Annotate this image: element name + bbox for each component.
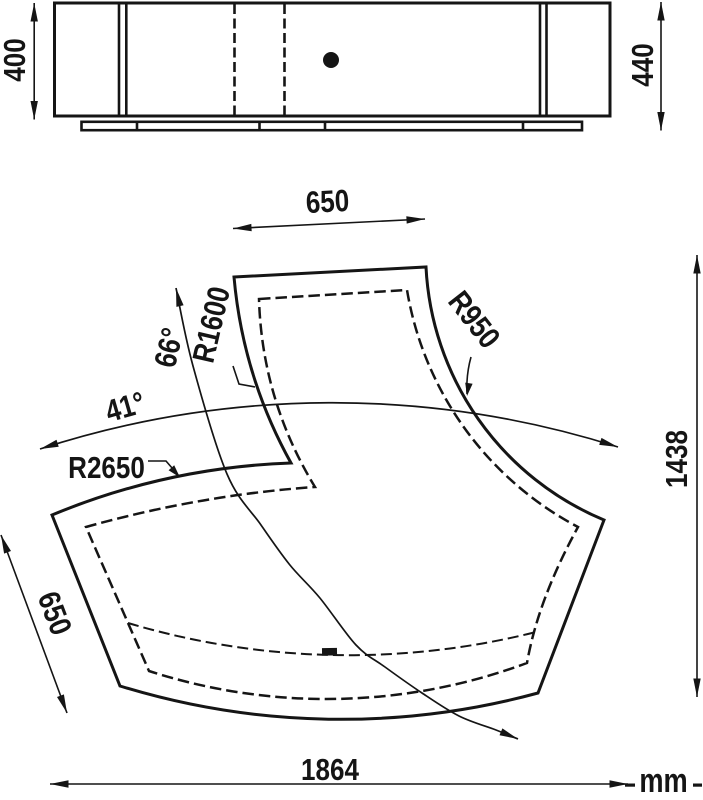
svg-text:41°: 41°	[102, 386, 149, 430]
svg-text:R2650: R2650	[68, 451, 145, 486]
svg-text:400: 400	[0, 38, 33, 81]
svg-text:650: 650	[305, 184, 350, 221]
svg-text:440: 440	[626, 43, 661, 86]
svg-text:1438: 1438	[660, 430, 695, 488]
svg-text:66°: 66°	[148, 325, 191, 371]
svg-text:mm: mm	[639, 761, 687, 800]
svg-text:R950: R950	[441, 285, 507, 355]
svg-text:1864: 1864	[301, 753, 359, 788]
svg-text:R1600: R1600	[186, 284, 237, 367]
